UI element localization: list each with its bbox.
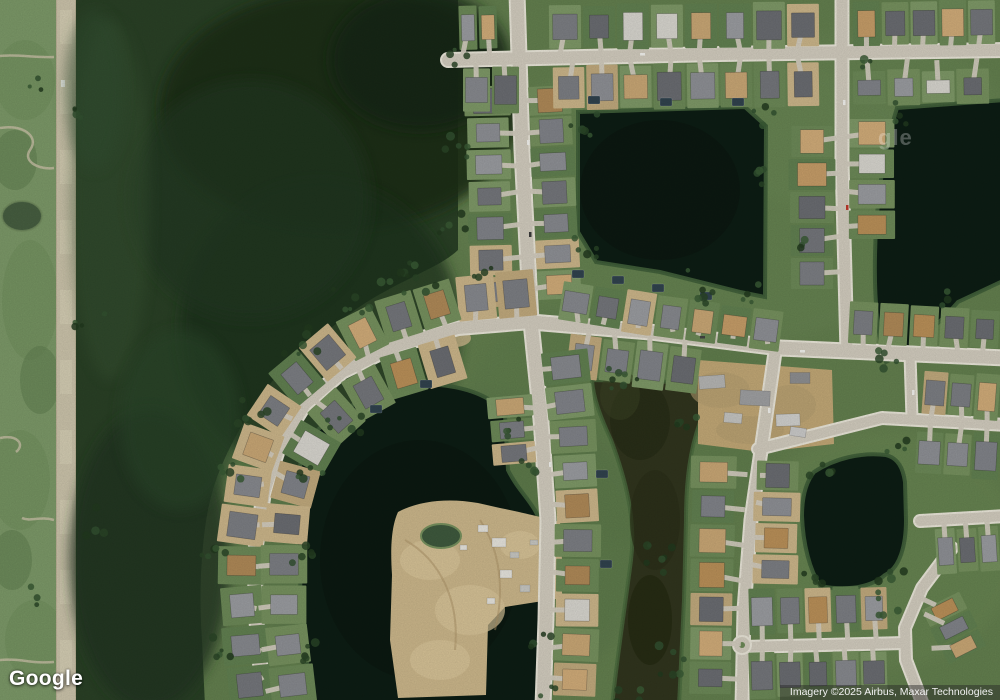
satellite-imagery <box>0 0 1000 700</box>
google-watermark: gle <box>878 125 913 151</box>
imagery-attribution: Imagery ©2025 Airbus, Maxar Technologies <box>780 685 1000 700</box>
map-viewport[interactable]: gle Google Imagery ©2025 Airbus, Maxar T… <box>0 0 1000 700</box>
imagery-grain-overlay <box>0 0 1000 700</box>
google-logo[interactable]: Google <box>9 667 83 691</box>
